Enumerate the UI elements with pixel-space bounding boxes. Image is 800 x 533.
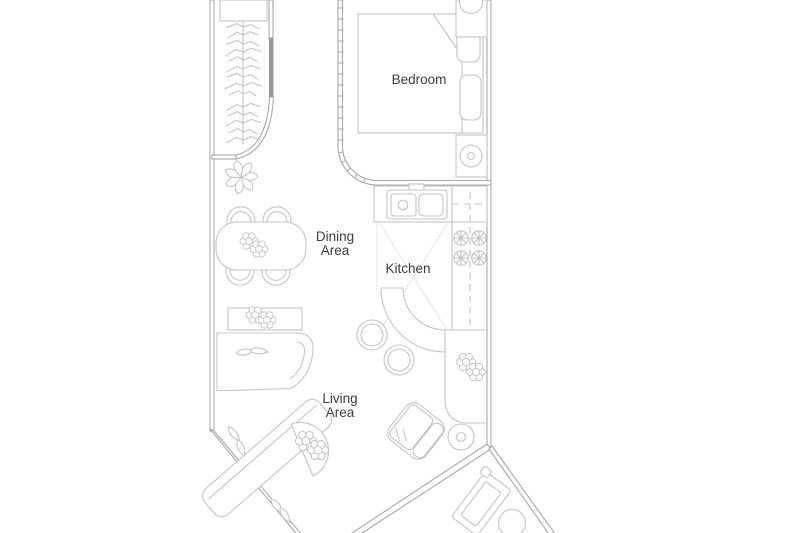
dining-label-line2: Area: [321, 243, 350, 258]
balcony-table: [499, 510, 526, 533]
plant-icon: [467, 363, 486, 380]
floor-plan: Bedroom Dining Area Kitchen Living Area: [0, 0, 800, 533]
plant-icon: [258, 312, 276, 328]
faucet: [409, 184, 424, 190]
wall-left: [210, 0, 214, 431]
stove-burners: [454, 231, 486, 265]
sofa-main-section: [217, 333, 313, 391]
bar-stool: [357, 320, 387, 350]
closet-shelf-box: [220, 0, 267, 21]
table-centerpiece-plant: [250, 241, 268, 257]
closet-door-leaf: [269, 38, 274, 97]
wall-closet-right: [269, 0, 273, 38]
side-table: [448, 424, 474, 450]
kitchen: [357, 184, 487, 423]
plant-icon: [224, 160, 258, 195]
sink-basin-left: [391, 194, 416, 216]
wall-right: [487, 0, 491, 447]
living-label-line1: Living: [322, 391, 357, 406]
closet: [220, 0, 267, 144]
bedroom: [358, 0, 487, 177]
armchair: [384, 399, 449, 464]
dining-label-line1: Dining: [316, 229, 354, 244]
pillow: [460, 75, 481, 120]
bar-stool: [384, 345, 414, 375]
dining-area: [216, 160, 306, 330]
kitchen-label: Kitchen: [385, 261, 430, 276]
breakfast-bar: [381, 288, 445, 352]
bedroom-label: Bedroom: [392, 72, 447, 87]
lamp-icon: [460, 145, 482, 167]
living-label-line2: Area: [326, 405, 355, 420]
living-area: [198, 333, 474, 524]
floor-plan-page: Bedroom Dining Area Kitchen Living Area: [0, 0, 800, 533]
sink-basin-right: [419, 194, 443, 216]
coffee-table-plant: [308, 440, 329, 459]
sofa-cushion-leaf: [278, 506, 293, 524]
wall-closet-bottom: [212, 155, 236, 159]
